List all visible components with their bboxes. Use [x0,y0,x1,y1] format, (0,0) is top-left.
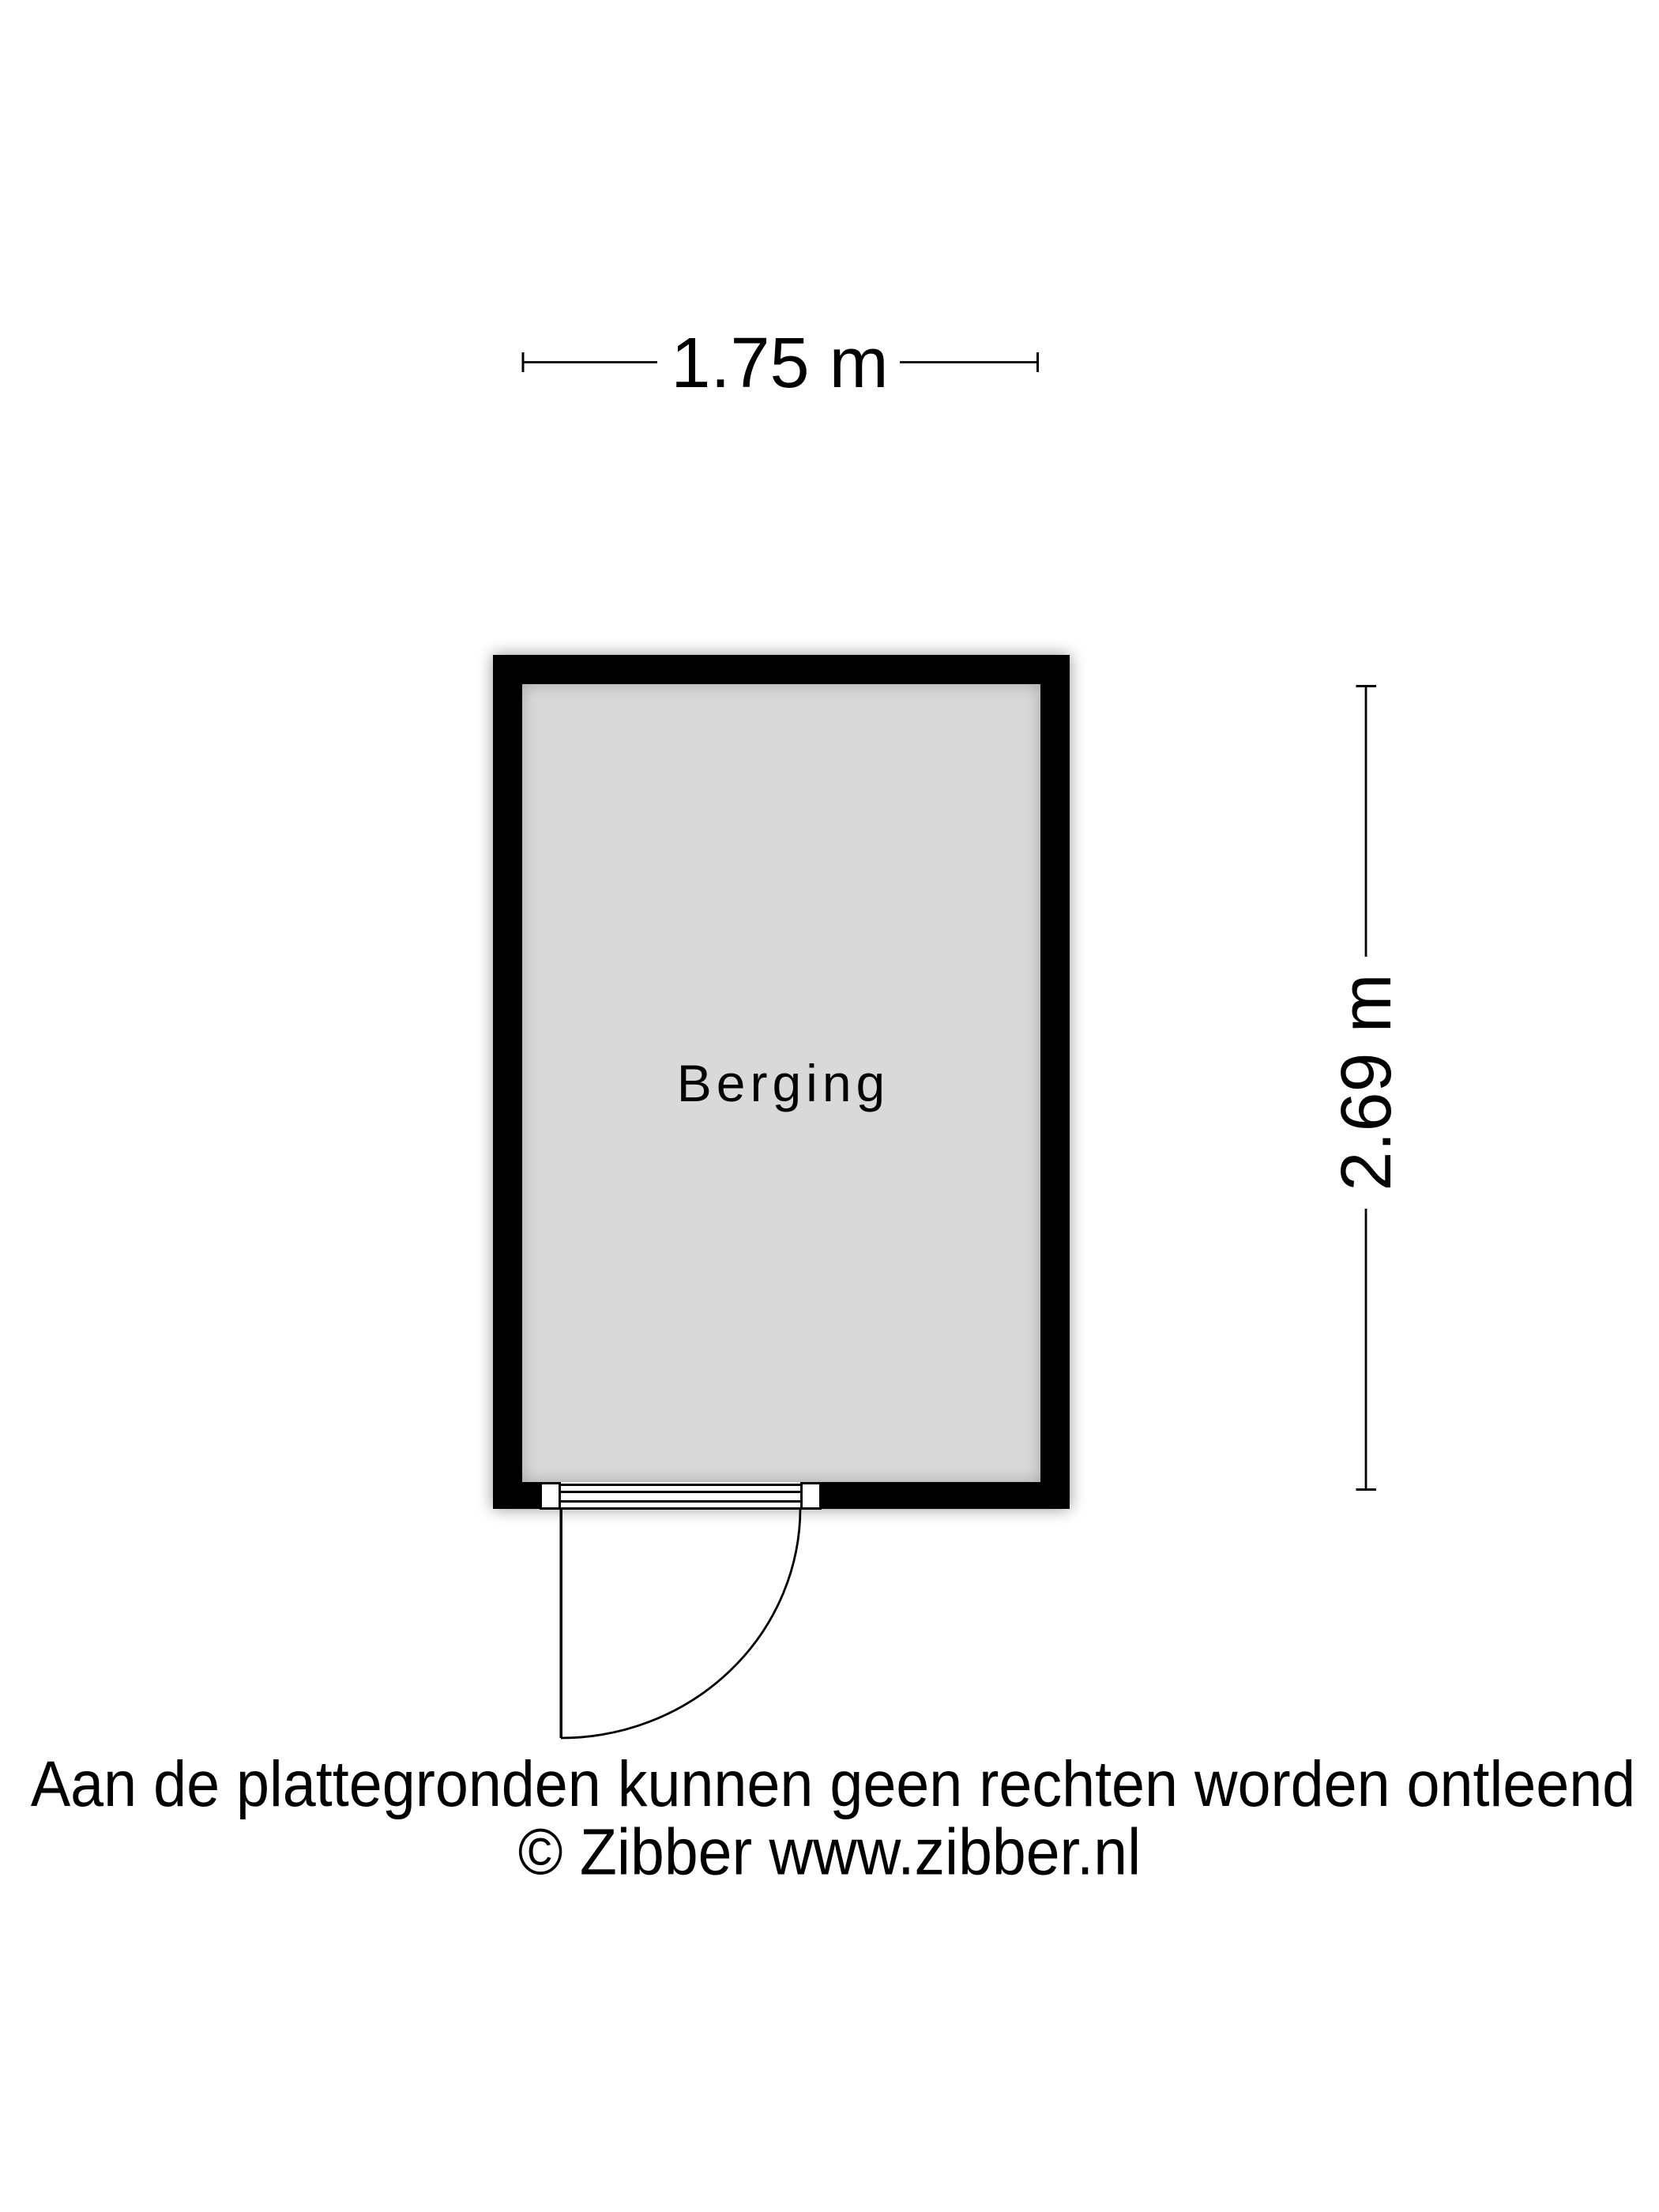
svg-text:2.69 m: 2.69 m [1327,973,1406,1191]
svg-text:1.75 m: 1.75 m [671,324,888,403]
svg-text:Aan de plattegronden kunnen ge: Aan de plattegronden kunnen geen rechten… [31,1747,1635,1819]
svg-text:Berging: Berging [677,1054,890,1112]
svg-text:© Zibber www.zibber.nl: © Zibber www.zibber.nl [518,1815,1142,1888]
